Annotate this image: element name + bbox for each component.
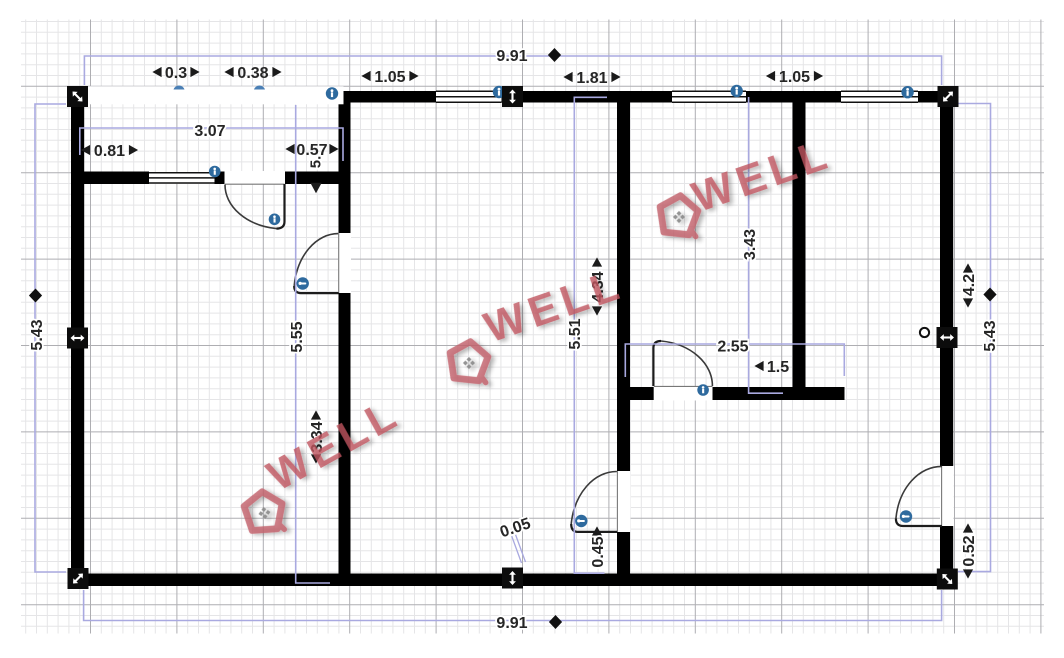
svg-text:3.07: 3.07 — [194, 123, 225, 140]
svg-text:5.55: 5.55 — [289, 321, 306, 352]
svg-text:1.05: 1.05 — [779, 69, 810, 86]
svg-text:0.38: 0.38 — [237, 65, 268, 82]
svg-text:3.43: 3.43 — [742, 229, 759, 260]
svg-text:5.: 5. — [307, 156, 324, 169]
svg-text:9.91: 9.91 — [496, 615, 527, 632]
svg-text:2.55: 2.55 — [717, 338, 748, 355]
svg-text:1.81: 1.81 — [576, 70, 607, 87]
svg-text:0.81: 0.81 — [94, 143, 125, 160]
svg-text:1.5: 1.5 — [767, 359, 789, 376]
svg-text:0.52: 0.52 — [961, 535, 978, 566]
svg-text:0.3: 0.3 — [165, 65, 187, 82]
svg-text:1.05: 1.05 — [374, 69, 405, 86]
svg-text:5.43: 5.43 — [982, 320, 999, 351]
svg-text:5.43: 5.43 — [29, 319, 46, 350]
svg-text:9.91: 9.91 — [496, 48, 527, 65]
svg-text:0.45: 0.45 — [590, 536, 607, 567]
svg-text:4.2: 4.2 — [961, 274, 978, 296]
